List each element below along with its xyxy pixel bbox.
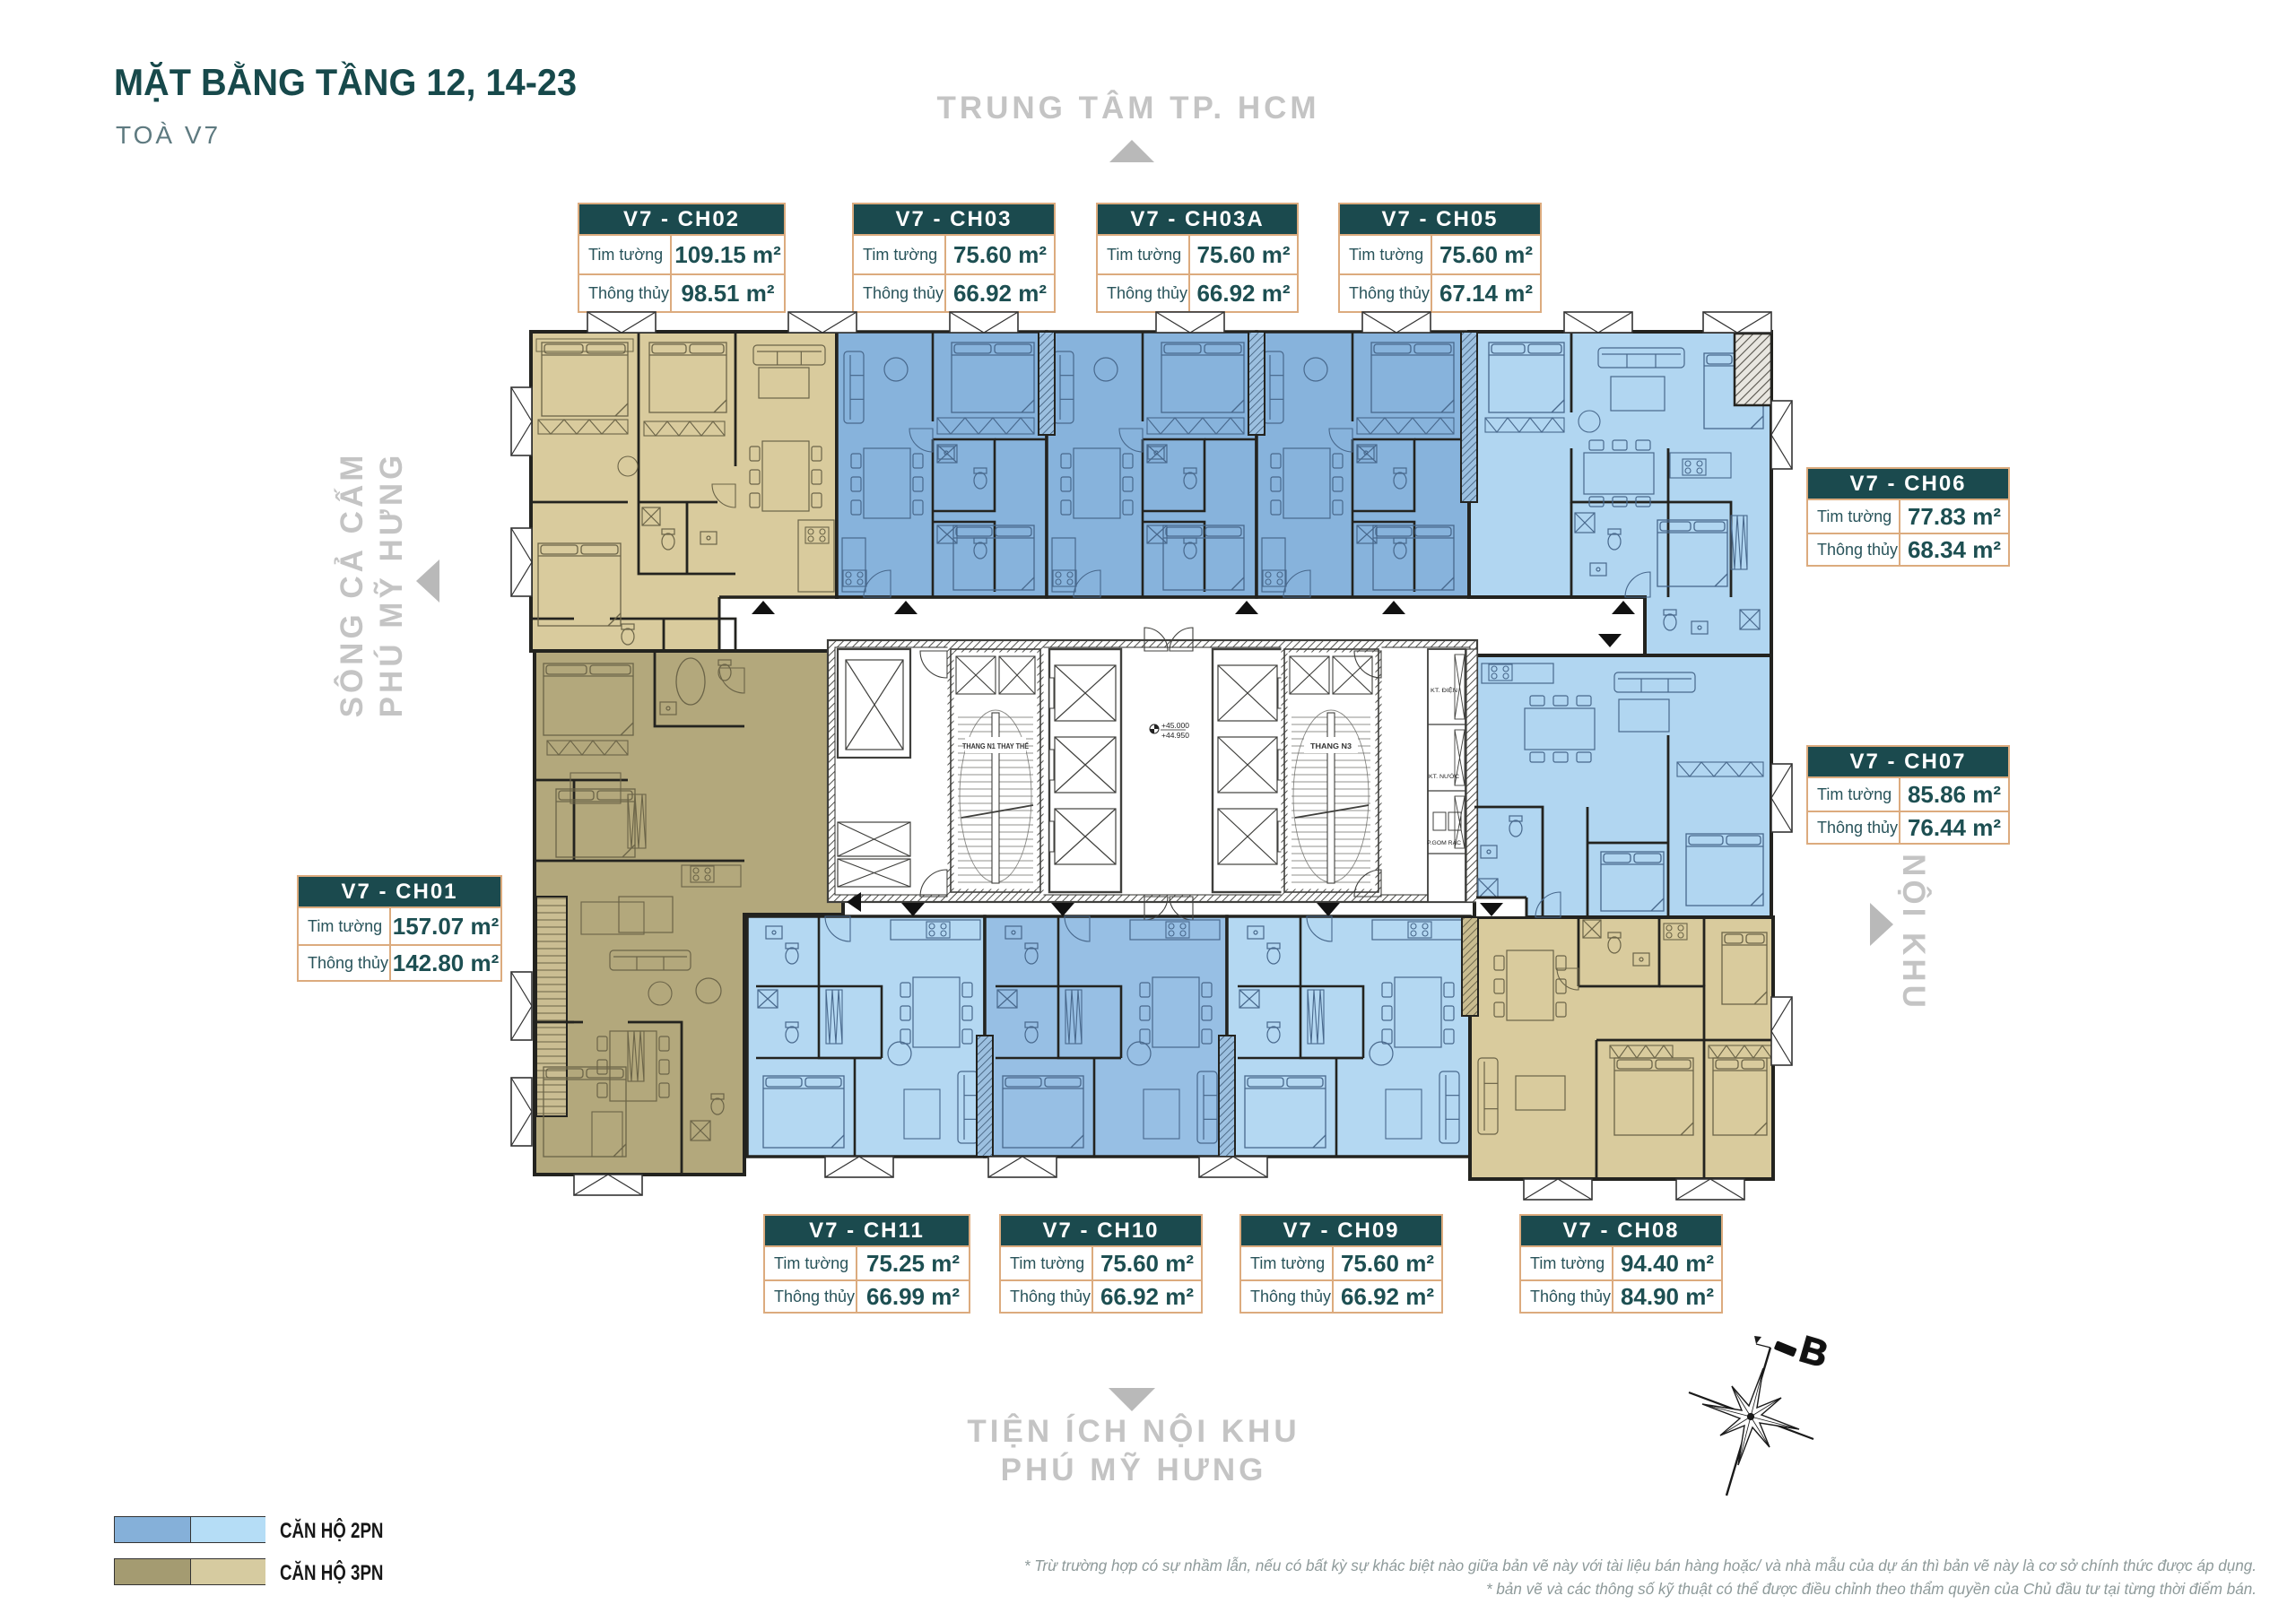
svg-text:KT. ĐIỆN: KT. ĐIỆN [1431,686,1457,694]
svg-text:+44.950: +44.950 [1161,731,1189,740]
svg-text:KT. NƯỚC: KT. NƯỚC [1429,772,1459,780]
svg-text:+45.000: +45.000 [1161,721,1189,730]
svg-text:P.GOM RÁC: P.GOM RÁC [1427,838,1461,846]
svg-text:THANG N3: THANG N3 [1310,742,1352,750]
svg-text:B: B [1796,1327,1833,1375]
svg-text:THANG N1 THAY THẾ: THANG N1 THAY THẾ [962,741,1030,750]
